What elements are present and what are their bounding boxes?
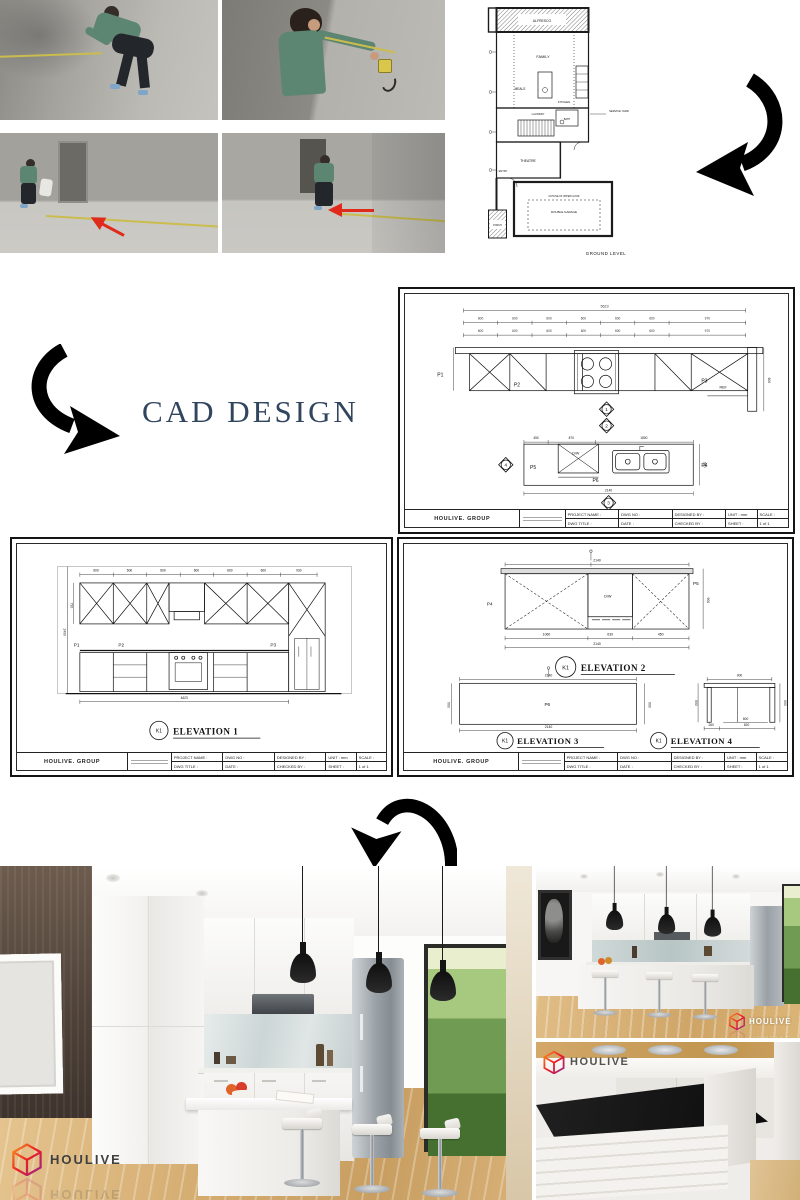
svg-text:260: 260 [709,723,715,727]
svg-text:5623: 5623 [601,304,609,308]
title-block-meta: UNIT : mmSCALE : SHEET :1 of 1 [725,753,787,770]
svg-text:600: 600 [581,329,587,333]
houlive-watermark: HOULIVE [542,1050,629,1074]
measuring-person-figure [92,6,172,116]
title-block-dwg: DWG NO : DATE : [223,753,274,770]
room-label-theatre: THEATRE [520,159,536,163]
svg-text:970: 970 [705,329,711,333]
island-countertop [186,1098,352,1110]
svg-text:K1: K1 [656,739,662,745]
cad-sheet-plan: 5623 600600 600600 600600 970 600600 600… [398,287,795,534]
svg-text:1800: 1800 [640,436,647,440]
svg-text:ELEVATION 2: ELEVATION 2 [581,663,646,673]
svg-text:P5: P5 [693,581,699,586]
render-kitchen-front: HOULIVE HOULIVE [536,866,800,1038]
title-block: HOULIVE. GROUP PROJECT NAME : DWG TITLE … [404,752,787,770]
cad-design-heading: CAD DESIGN [142,394,359,430]
svg-text:900: 900 [694,700,698,706]
houlive-logo-icon [542,1050,566,1074]
svg-text:2140: 2140 [545,725,553,729]
svg-text:600: 600 [581,317,587,321]
houlive-watermark-reflection: HOULIVE [728,1030,792,1038]
elevation2-island [501,569,693,629]
bar-stool [352,1124,394,1196]
pendant-lamp [704,866,721,932]
svg-text:ELEVATION 4: ELEVATION 4 [671,736,733,746]
title-block-designers: DESIGNED BY : CHECKED BY : [275,753,326,770]
svg-text:D/W: D/W [572,451,580,455]
svg-text:900: 900 [783,700,787,706]
drawer-front [536,1125,728,1200]
elevation2-title: K1 ELEVATION 2 [556,657,675,677]
svg-text:600: 600 [227,569,233,573]
bar-stool [282,1118,324,1190]
svg-text:970: 970 [705,317,711,321]
tape-measure-body [378,59,392,73]
title-block-meta: UNIT : mmSCALE : SHEET :1 of 1 [726,510,788,527]
room-label-kitchen: KITCHEN [558,100,570,104]
svg-text:P1: P1 [437,372,443,378]
svg-text:450: 450 [533,436,539,440]
elevation1-labels: P1 P2 P3 [74,642,277,647]
svg-text:600: 600 [160,569,166,573]
cad-sheet-elevation-1: 600600 600600 600600 930 2400 730 4623 [10,537,393,777]
svg-text:P5: P5 [530,465,536,471]
svg-text:1060: 1060 [543,633,551,637]
refrigerator [750,906,784,1006]
elevation4-title: K1 ELEVATION 4 [651,733,760,749]
title-block-dwg: DWG NO : DATE : [619,510,672,527]
svg-text:2: 2 [605,423,608,428]
svg-text:600: 600 [743,717,749,721]
houlive-watermark-text: HOULIVE [50,1152,122,1167]
range-hood [654,932,690,940]
svg-text:600: 600 [478,329,484,333]
curved-arrow-left-icon [688,72,788,202]
svg-text:3: 3 [607,501,610,506]
mirror-backsplash [592,940,750,962]
title-block-company: HOULIVE. GROUP [17,753,128,770]
svg-text:870: 870 [569,436,575,440]
elevation1-drawing: 600600 600600 600600 930 2400 730 4623 [17,544,386,753]
svg-text:900: 900 [648,702,652,708]
svg-text:600: 600 [615,329,621,333]
photo-measuring-wall-tape [222,0,445,120]
svg-text:K1: K1 [502,739,508,745]
title-block-company: HOULIVE. GROUP [404,753,519,770]
svg-text:600: 600 [649,317,655,321]
pendant-lamp [290,866,316,986]
svg-text:600: 600 [767,378,771,384]
room-label-bath: BATH [564,118,571,121]
svg-text:600: 600 [194,569,200,573]
svg-text:900: 900 [706,597,710,603]
floor-plan-caption: GROUND LEVEL [586,251,626,256]
elevation1-cabinets [66,583,342,694]
room-label-porch: PORCH [493,224,502,227]
elevation3-label: P6 [544,702,550,707]
svg-text:2400: 2400 [63,628,67,635]
title-block-designers: DESIGNED BY : CHECKED BY : [672,753,725,770]
promo-page: ALFRESCO FAMILY MEALS KITCHEN LAUNDRY BA… [0,0,800,1200]
svg-text:600: 600 [546,317,552,321]
houlive-logo-icon [728,1012,746,1030]
svg-text:K1: K1 [562,665,569,671]
elevations234-drawing: 2140 900 1060 630 450 2140 P4 P5 D/W K1 … [404,544,787,753]
svg-text:600: 600 [512,329,518,333]
curved-arrow-down-icon [345,779,457,871]
svg-text:REF: REF [719,386,727,390]
wall-art-frame [0,953,63,1094]
floor-plan-walls [489,8,613,238]
measuring-person-figure [310,155,370,235]
svg-text:600: 600 [615,317,621,321]
svg-text:450: 450 [658,633,664,637]
svg-text:600: 600 [93,569,99,573]
title-block-meta: UNIT : mmSCALE : SHEET :1 of 1 [326,753,386,770]
gorilla-artwork [538,890,572,960]
render-kitchen-main: HOULIVE HOULIVE [0,866,532,1200]
svg-text:P3: P3 [701,378,707,384]
plan-island [524,444,693,485]
svg-text:4623: 4623 [181,696,188,700]
title-block: HOULIVE. GROUP PROJECT NAME : DWG TITLE … [17,752,386,770]
title-block-notes [519,753,564,770]
svg-text:2140: 2140 [605,488,612,492]
room-label-entry: ENTRY [499,169,508,173]
pendant-lamp [658,866,675,929]
plan-counter-run [455,347,762,411]
svg-text:600: 600 [478,317,484,321]
bar-stool [646,972,674,1020]
pendant-lamp [606,866,623,925]
elevation3-title: K1 ELEVATION 3 [497,733,604,749]
room-label-laundry: LAUNDRY [532,112,545,116]
pendant-lamp [430,866,456,1006]
svg-text:2140: 2140 [593,642,601,646]
measuring-person-figure [262,8,432,118]
curved-arrow-right-icon [26,344,126,459]
floor-plan-drawing: ALFRESCO FAMILY MEALS KITCHEN LAUNDRY BA… [486,2,642,260]
svg-text:2140: 2140 [545,674,553,678]
svg-text:620: 620 [744,723,750,727]
title-block-notes [128,753,172,770]
title-block: HOULIVE. GROUP PROJECT NAME : DWG TITLE … [405,509,788,527]
elevation1-title: K1 ELEVATION 1 [150,721,260,739]
title-block-company: HOULIVE. GROUP [405,510,520,527]
title-block-project: PROJECT NAME : DWG TITLE : [172,753,223,770]
svg-text:730: 730 [70,603,74,609]
side-wall [506,866,532,1200]
svg-text:930: 930 [296,569,302,573]
svg-text:P2: P2 [514,383,520,389]
svg-text:1: 1 [605,407,608,412]
photo-room-measure-right [222,133,445,253]
tape-measure-line [0,52,102,58]
svg-text:D/W: D/W [604,594,612,598]
houlive-watermark-reflection: HOULIVE [10,1178,122,1200]
wood-floor [750,1160,800,1200]
svg-text:P3: P3 [270,642,276,647]
bar-stool [692,974,720,1022]
red-arrow-annotation [83,211,130,251]
svg-text:600: 600 [512,317,518,321]
garden-window [782,884,800,1002]
title-block-designers: DESIGNED BY : CHECKED BY : [673,510,726,527]
svg-text:ELEVATION 3: ELEVATION 3 [517,736,579,746]
svg-text:P2: P2 [118,642,124,647]
svg-text:900: 900 [702,462,706,468]
svg-text:600: 600 [261,569,267,573]
elevation2-labels: P4 P5 D/W [487,581,699,607]
houlive-watermark: HOULIVE [728,1012,792,1030]
title-block-notes [520,510,565,527]
photo-measuring-floor-tape [0,0,218,120]
svg-text:P1: P1 [74,642,80,647]
bar-stool [420,1128,462,1200]
plan-drawing: 5623 600600 600600 600600 970 600600 600… [405,294,788,510]
title-block-dwg: DWG NO : DATE : [618,753,671,770]
title-block-project: PROJECT NAME : DWG TITLE : [565,753,618,770]
houlive-logo-icon [10,1142,44,1176]
svg-text:600: 600 [649,329,655,333]
svg-text:600: 600 [127,569,133,573]
svg-text:ELEVATION 1: ELEVATION 1 [173,727,238,737]
room-label-alfresco: ALFRESCO [533,19,552,23]
svg-text:2140: 2140 [593,558,601,562]
pendant-lamp [366,866,392,996]
room-label-garage: DOUBLE GARAGE [551,210,577,214]
svg-text:K1: K1 [156,728,162,734]
svg-text:900: 900 [446,702,450,708]
photo-room-measure-left [0,133,218,253]
room-label-service-yard: SERVICE YARD [609,109,629,113]
svg-text:4: 4 [504,463,507,468]
houlive-watermark: HOULIVE [10,1142,122,1176]
room-label-family: FAMILY [536,55,550,59]
range-hood [252,994,314,1016]
bar-stool [592,970,620,1018]
measuring-person-figure [18,159,78,229]
svg-text:P6: P6 [592,478,598,484]
plan-dimensions [453,308,763,495]
svg-text:600: 600 [546,329,552,333]
svg-text:P4: P4 [487,601,493,606]
svg-text:630: 630 [607,633,613,637]
svg-text:900: 900 [737,674,743,678]
cad-sheet-elevations-234: 2140 900 1060 630 450 2140 P4 P5 D/W K1 … [397,537,794,777]
upper-floor-note: OUTLINE OF UPPER FLOOR [549,196,580,198]
title-block-project: PROJECT NAME : DWG TITLE : [566,510,619,527]
room-label-meals: MEALS [515,87,526,91]
render-drawer-detail: HOULIVE [536,1042,800,1200]
elevation4-unit [704,683,775,722]
